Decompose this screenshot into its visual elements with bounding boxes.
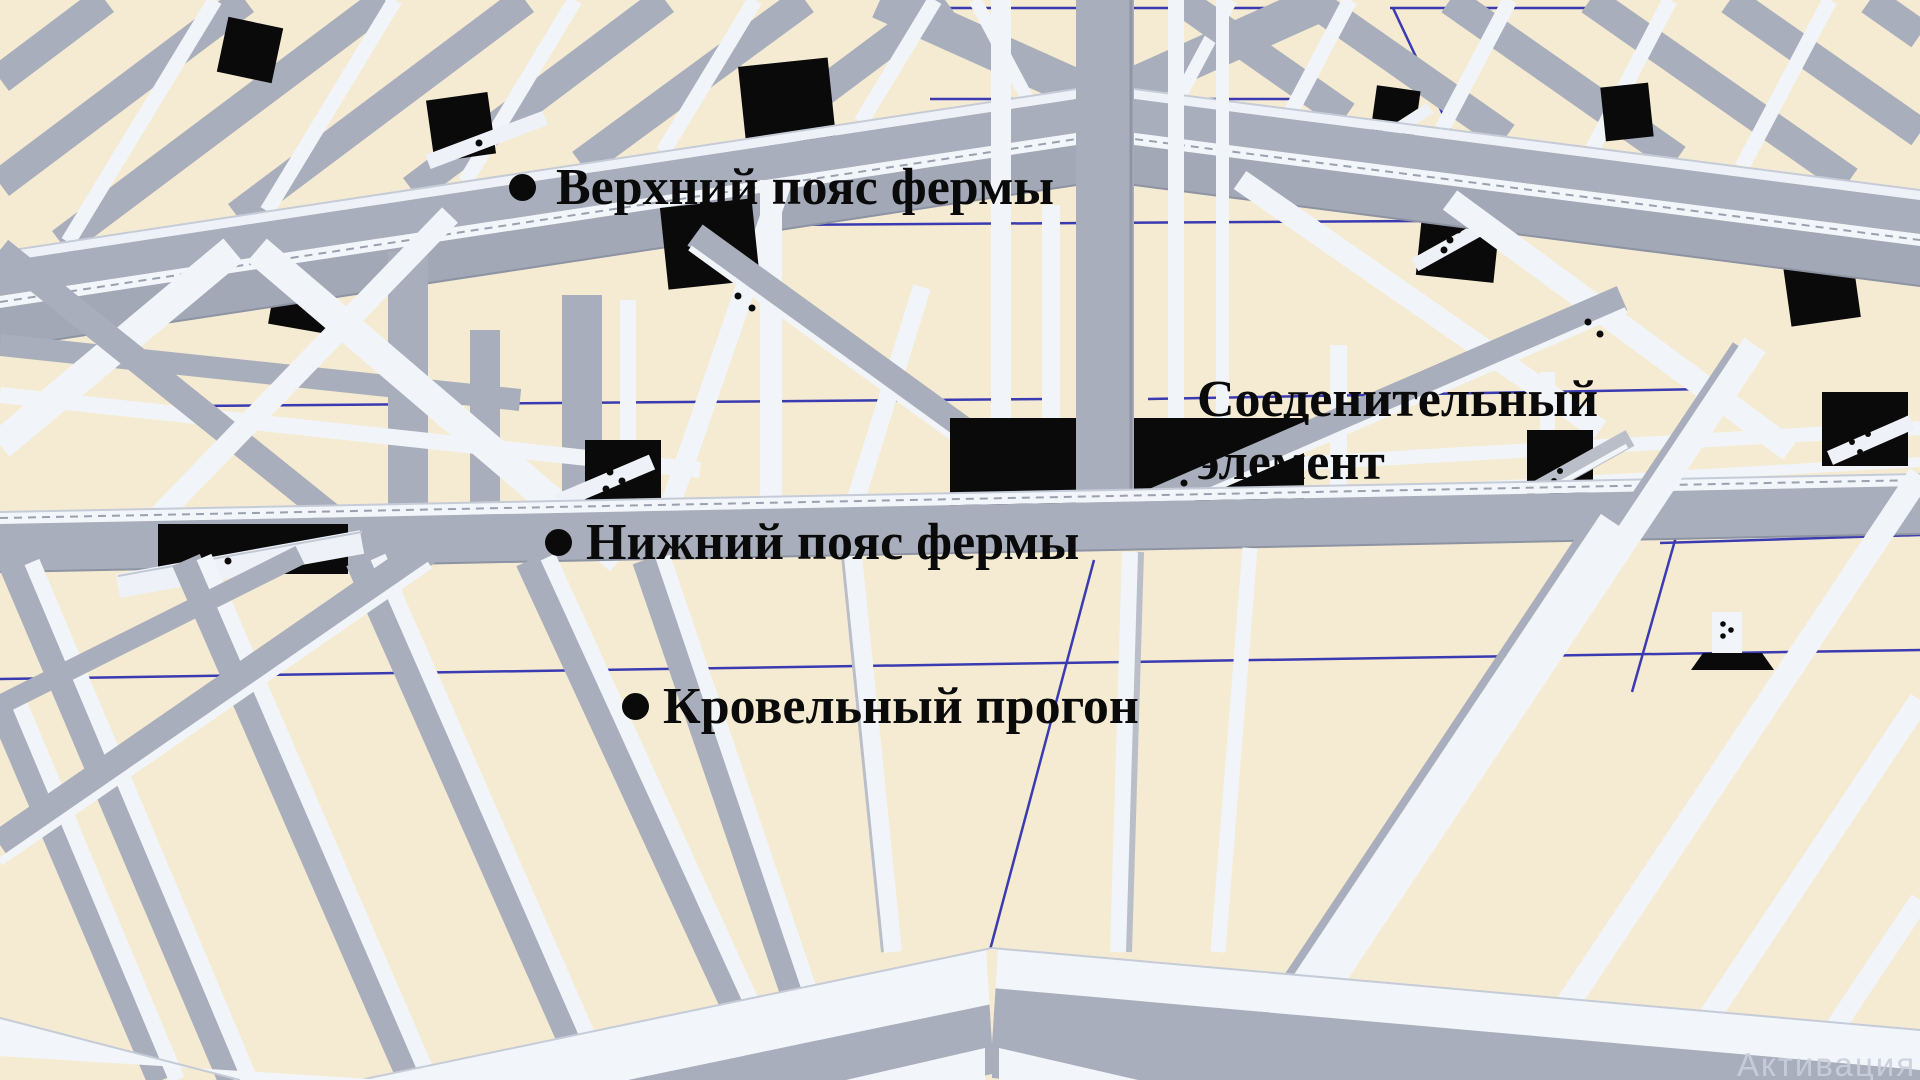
- annotation-connector: Соеденительный элемент: [1156, 368, 1598, 495]
- gusset-plate: [217, 17, 283, 83]
- bullet-icon: [545, 529, 572, 556]
- structural-3d-view: Верхний пояс фермы Соеденительный элемен…: [0, 0, 1920, 1080]
- annotation-roof-purlin: Кровельный прогон: [622, 675, 1139, 738]
- stud-base-beam: [1712, 612, 1742, 660]
- annotation-lower-chord: Нижний пояс фермы: [545, 511, 1079, 574]
- gusset-plate: [1600, 83, 1653, 142]
- annotation-text: Верхний пояс фермы: [556, 156, 1054, 219]
- bullet-icon: [622, 693, 649, 720]
- annotation-text: Нижний пояс фермы: [586, 511, 1079, 574]
- windows-activation-watermark: Активация W: [1737, 1046, 1920, 1080]
- annotation-upper-chord: Верхний пояс фермы: [509, 156, 1054, 219]
- base-plate: [1691, 653, 1774, 670]
- bullet-icon: [509, 174, 536, 201]
- annotation-text: Кровельный прогон: [663, 675, 1139, 738]
- central-post-beam: [1076, 0, 1134, 515]
- annotation-text: Соеденительный: [1197, 368, 1598, 431]
- bullet-icon: [1156, 418, 1183, 445]
- annotation-text: элемент: [1197, 431, 1598, 494]
